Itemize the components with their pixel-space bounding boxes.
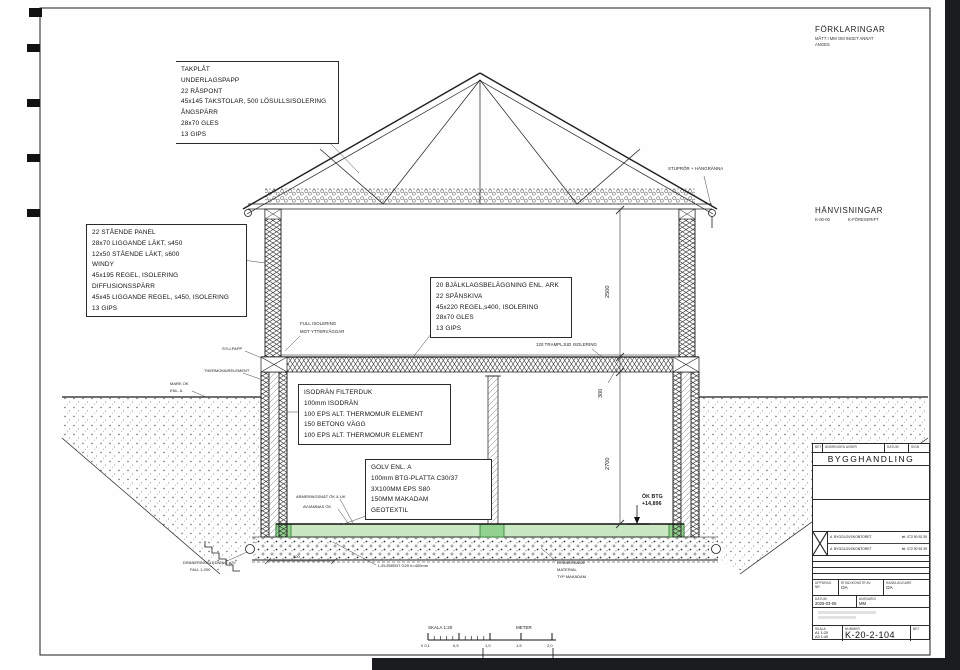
callout-roof-construction: TAKPLÅTUNDERLAGSPAPP22 RÅSPONT45x145 TAK…: [176, 61, 339, 144]
dim-basement: 2700: [605, 458, 612, 470]
ground-level-label: ENL. A: [170, 388, 182, 393]
scalebar-title: SKALA 1:20: [428, 625, 452, 631]
level-marker: [627, 505, 649, 524]
date-value: 2025-03-06: [815, 601, 854, 606]
scalebar-tick: 1,0: [485, 643, 491, 648]
contact-name: BYGGLOVSKONTORET: [834, 535, 872, 539]
callout-floor-slab: GOLV ENL. A100mm BTG-PLATTA C30/373X100M…: [365, 459, 492, 520]
status-row: BYGGHANDLING: [813, 453, 929, 466]
legend-title: FÖRKLARINGAR: [815, 25, 885, 35]
handler-value: OA: [886, 585, 927, 590]
impact-insulation-label: 120 TRAMPLJUD ISOLERING: [536, 342, 597, 347]
callout-line: 100 EPS ALT. THERMOMUR ELEMENT: [304, 431, 446, 442]
callout-line: 150MM MAKADAM: [371, 495, 487, 506]
project-name-cell: [813, 608, 929, 626]
scalebar-unit: METER: [516, 625, 532, 631]
callout-line: GEOTEXTIL: [371, 506, 487, 517]
callout-line: 28x70 GLES: [436, 313, 567, 324]
legend-note: ANGES: [815, 42, 830, 47]
l-element-label: L-ELEMENT G20 h=400mm: [378, 563, 428, 568]
consultant-contact: A BYGGLOVSKONTORET tel. 072 90 92 39: [828, 544, 929, 555]
drainage-pipe-label: DRÄNERINGSLEDNING ø70: [183, 560, 235, 565]
consultant-logo-icon: [813, 532, 828, 555]
dim-upper-room: 2500: [605, 286, 612, 298]
callout-line: DIFFUSIONSSPÄRR: [92, 282, 242, 293]
callout-line: TAKPLÅT: [181, 65, 334, 76]
callout-line: 45x195 REGEL, ISOLERING: [92, 271, 242, 282]
rev-header: SIGN: [909, 444, 929, 452]
callout-line: 45x220 REGEL,s400, ISOLERING: [436, 303, 567, 314]
consultant-contact: A BYGGLOVSKONTORET tel. 072 90 92 39: [828, 532, 929, 544]
field-label: BET: [913, 627, 927, 631]
contact-mark: A: [830, 535, 832, 539]
contact-tel: tel. 072 90 92 39: [902, 532, 927, 543]
roof-truss: [320, 80, 640, 204]
callout-basement-wall: ISODRÄN FILTERDUK100mm ISODRÄN100 EPS AL…: [298, 384, 451, 445]
callout-line: 100mm ISODRÄN: [304, 399, 446, 410]
level-label: ÖK BTG: [642, 494, 663, 501]
field-label: UPPDRAG NR: [815, 581, 836, 589]
scalebar-tick: 2,0: [547, 643, 553, 648]
callout-exterior-wall: 22 STÅENDE PANEL28x70 LIGGANDE LÄKT, s45…: [86, 224, 247, 317]
leveling-label: AVJÄMNAS ÖK: [303, 504, 331, 509]
drawn-by-value: OA: [841, 585, 881, 590]
full-insulation-label: FULL ISOLERING: [300, 321, 336, 326]
callout-line: ÅNGSPÄRR: [181, 108, 334, 119]
callout-intermediate-floor: 20 BJÄLKLAGSBELÄGGNING ENL. ARK22 SPÅNSK…: [430, 277, 572, 338]
callout-line: 22 SPÅNSKIVA: [436, 292, 567, 303]
thermomur-label: THERMOMURELEMENT: [204, 368, 249, 373]
sill-label: SYLLPAPP: [222, 346, 242, 351]
scalebar-tick: 1,5: [516, 643, 522, 648]
reference-code: K-00-00: [815, 217, 830, 222]
drawing-page: TAKPLÅTUNDERLAGSPAPP22 RÅSPONT45x145 TAK…: [0, 0, 960, 670]
dim-floor: 300: [598, 389, 605, 398]
gutter-left: [245, 210, 252, 217]
revision-header-row: BET ÄNDRINGEN AVSER DATUM SIGN: [813, 444, 929, 453]
callout-line: GOLV ENL. A: [371, 463, 487, 474]
callout-line: 22 RÅSPONT: [181, 87, 334, 98]
callout-line: 150 BETONG VÄGG: [304, 420, 446, 431]
drawing-number: K-20-2-104: [845, 631, 908, 640]
callout-line: 28x70 GLES: [181, 119, 334, 130]
responsible-value: MM: [859, 601, 927, 606]
rev-header: BET: [813, 444, 823, 452]
consultant-row: A BYGGLOVSKONTORET tel. 072 90 92 39 A B…: [813, 532, 929, 556]
full-insulation-label: MOT YTTERVÄGGAR: [300, 329, 344, 334]
callout-line: 13 GIPS: [92, 304, 242, 315]
callout-line: 22 STÅENDE PANEL: [92, 228, 242, 239]
legend-note: MÅTT I MM OM INGET ANNAT: [815, 36, 873, 41]
references-title: HÄNVISNINGAR: [815, 206, 883, 216]
callout-line: 13 GIPS: [436, 324, 567, 335]
reinforcement-label: ARMERINGSNÄT ÖK & UK: [296, 494, 346, 499]
contact-mark: A: [830, 547, 832, 551]
floor-slab: [276, 524, 684, 537]
contact-name: BYGGLOVSKONTORET: [834, 547, 872, 551]
rev-header: ÄNDRINGEN AVSER: [823, 444, 885, 452]
date-row: DATUM 2025-03-06 ANSVARIG MM: [813, 596, 929, 608]
draining-material-label: DRÄNERANDE: [557, 560, 585, 565]
callout-line: 12x50 STÅENDE LÄKT, s600: [92, 250, 242, 261]
callout-line: UNDERLAGSPAPP: [181, 76, 334, 87]
level-value: +14,896: [642, 501, 662, 508]
callout-line: WINDY: [92, 260, 242, 271]
callout-line: 45x145 TAKSTOLAR, 500 LÖSULLSISOLERING: [181, 97, 334, 108]
drain-pipe-right: [712, 545, 721, 554]
contact-tel: tel. 072 90 92 39: [902, 544, 927, 555]
callout-line: 45x45 LIGGANDE REGEL, s450, ISOLERING: [92, 293, 242, 304]
callout-line: 28x70 LIGGANDE LÄKT, s450: [92, 239, 242, 250]
scale-a3: A3 1:40: [815, 635, 840, 639]
gutter-label: STUPRÖR + HÄNGRÄNNA: [668, 166, 723, 171]
number-row: SKALA A1 1:20 A3 1:40 NUMMER K-20-2-104 …: [813, 626, 929, 641]
gutter-right: [709, 210, 716, 217]
stamp-area: [813, 466, 929, 500]
callout-line: 3X100MM EPS S80: [371, 485, 487, 496]
reference-doc: K-FÖRESKRIFT: [848, 217, 879, 222]
dim-500-label: 500: [293, 554, 300, 559]
callout-line: 13 GIPS: [181, 130, 334, 141]
drainage-pipe-label: FALL 1:200: [190, 567, 210, 572]
callout-line: 100mm BTG-PLATTA C30/37: [371, 474, 487, 485]
ground-level-label: MARK OK: [170, 381, 188, 386]
scalebar-tick: 0 0,1: [421, 643, 430, 648]
intermediate-floor: [261, 355, 699, 372]
fields-row: UPPDRAG NR RITAD/KONSTR AV OA HANDLÄGGAR…: [813, 580, 929, 596]
scalebar-tick: 0,5: [453, 643, 459, 648]
callout-line: ISODRÄN FILTERDUK: [304, 388, 446, 399]
title-block: BET ÄNDRINGEN AVSER DATUM SIGN BYGGHANDL…: [812, 443, 930, 640]
draining-material-label: TYP MAKADAM: [557, 574, 586, 579]
callout-line: 100 EPS ALT. THERMOMUR ELEMENT: [304, 410, 446, 421]
callout-line: 20 BJÄLKLAGSBELÄGGNING ENL. ARK: [436, 281, 567, 292]
document-status: BYGGHANDLING: [813, 453, 929, 465]
rev-header: DATUM: [885, 444, 909, 452]
stamp-area: [813, 500, 929, 532]
makadam-layer: [243, 537, 723, 562]
draining-material-label: MATERIAL: [557, 567, 577, 572]
